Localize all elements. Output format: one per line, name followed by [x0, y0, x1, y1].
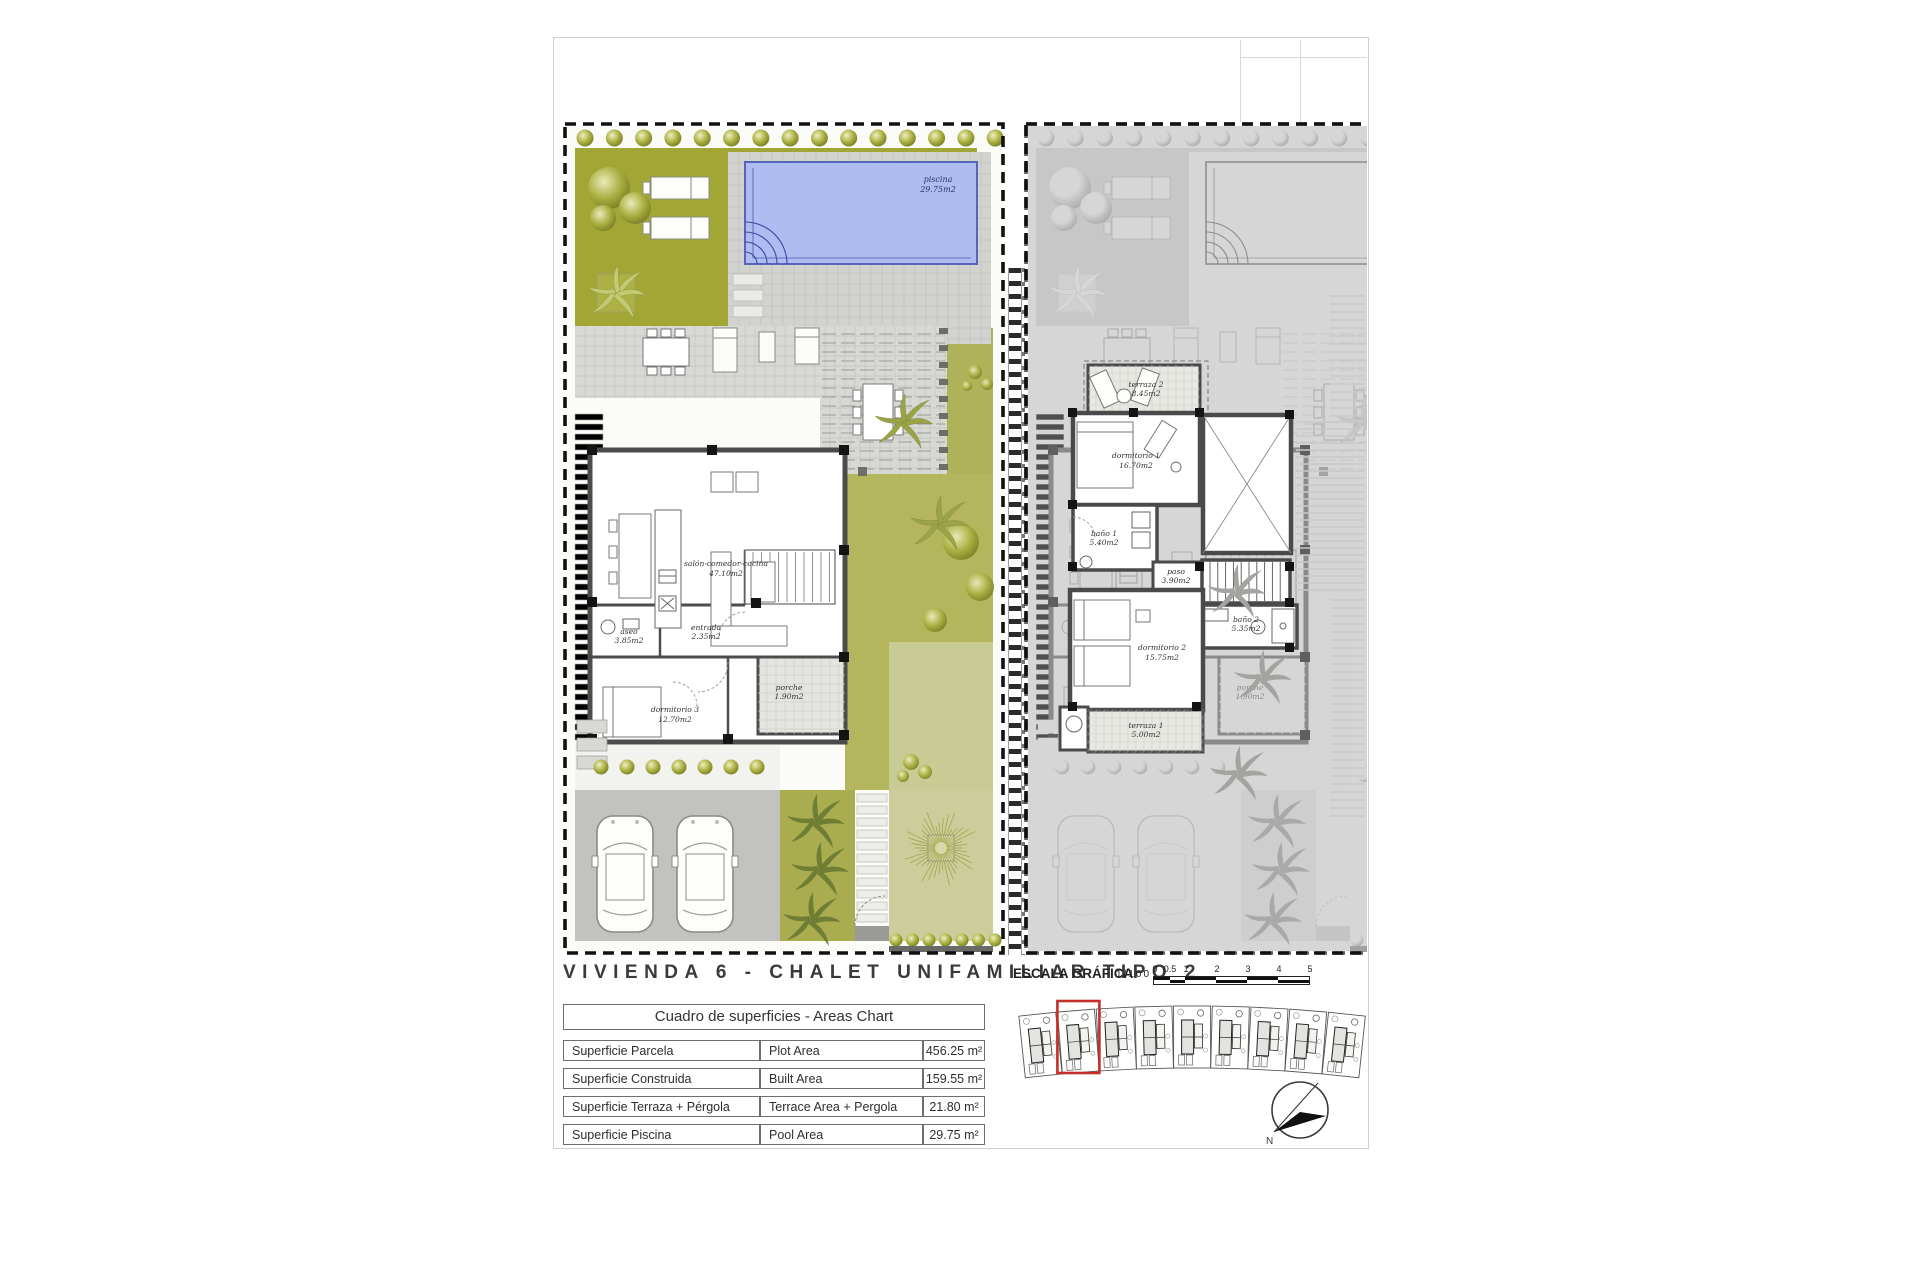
scale-tick: 0.5: [1164, 964, 1177, 974]
neighbour-line: [1240, 57, 1367, 58]
graphic-scale: ESCALA GRÁFICA 1/100 0 0.5 1 2 3 4 5: [1013, 964, 1363, 994]
room-area: 5.35m2: [1232, 624, 1261, 633]
room-area: 8.45m2: [1132, 389, 1161, 398]
room-area: 15.75m2: [1145, 653, 1179, 662]
ground-floor-plan: piscina 29.75m2: [563, 122, 1005, 955]
pool-area: 29.75m2: [919, 185, 956, 194]
scale-tick: 4: [1276, 964, 1281, 974]
room-label: baño 1: [1091, 529, 1117, 538]
car-icon: [592, 816, 658, 932]
palm-strip: [780, 790, 855, 946]
drawing-page: piscina 29.75m2: [0, 0, 1920, 1280]
scale-tick: 5: [1307, 964, 1312, 974]
table-row: Superficie Construida Built Area 159.55 …: [563, 1068, 985, 1089]
room-label: terraza 1: [1128, 721, 1163, 730]
room-label: baño 2: [1233, 615, 1259, 624]
driveway: [575, 720, 780, 941]
room-area: 5.00m2: [1132, 730, 1161, 739]
room-area: 16.70m2: [1119, 461, 1153, 470]
cell-en: Pool Area: [760, 1124, 923, 1145]
site-plan-strip: [1016, 996, 1368, 1082]
kitchen-island: [655, 510, 681, 628]
tree-row: [577, 130, 1004, 147]
site-unit: [1248, 1007, 1288, 1071]
cell-en: Terrace Area + Pergola: [760, 1096, 923, 1117]
scale-tick: 3: [1245, 964, 1250, 974]
section-ladder: [1008, 268, 1022, 955]
site-unit: [1322, 1012, 1365, 1078]
cell-value: 29.75 m²: [923, 1124, 985, 1145]
site-unit: [1135, 1006, 1174, 1069]
site-unit: [1058, 1009, 1100, 1074]
room-area: 3.90m2: [1162, 576, 1191, 585]
room-label: dormitorio 3: [651, 705, 699, 714]
cell-value: 456.25 m²: [923, 1040, 985, 1061]
plan-title: VIVIENDA 6 - CHALET UNIFAMILIAR TIPO 2: [563, 962, 1033, 988]
room-area: 47.10m2: [708, 569, 743, 578]
scale-tick: 2: [1214, 964, 1219, 974]
house: salón-comedor-cocina 47.10m2 entrada 2.3…: [587, 445, 849, 744]
scale-bar: 0 0.5 1 2 3 4 5: [1153, 964, 1313, 988]
car-icon: [672, 816, 738, 932]
walkway: [855, 790, 889, 941]
north-label: N: [1266, 1136, 1273, 1147]
table-row: Superficie Terraza + Pérgola Terrace Are…: [563, 1096, 985, 1117]
areas-table-header: Cuadro de superficies - Areas Chart: [563, 1004, 985, 1030]
site-unit: [1285, 1009, 1327, 1074]
scale-ratio: 1/100: [1116, 969, 1151, 980]
site-unit: [1211, 1006, 1250, 1069]
room-area: 1.90m2: [775, 692, 804, 701]
site-unit: [1174, 1006, 1211, 1068]
room-label: terraza 2: [1128, 380, 1163, 389]
pool-label: piscina: [924, 175, 953, 184]
site-unit: [1096, 1007, 1136, 1071]
cell-value: 159.55 m²: [923, 1068, 985, 1089]
ground-floor-content: piscina 29.75m2: [565, 124, 1004, 953]
cell-es: Superficie Parcela: [563, 1040, 760, 1061]
table-row: Superficie Parcela Plot Area 456.25 m²: [563, 1040, 985, 1061]
pool: piscina 29.75m2: [745, 162, 977, 264]
outdoor-dining-table: [643, 329, 689, 375]
scale-tick: 1: [1183, 964, 1188, 974]
cell-en: Built Area: [760, 1068, 923, 1089]
room-label: aseo: [620, 627, 638, 636]
cell-en: Plot Area: [760, 1040, 923, 1061]
room-area: 12.70m2: [658, 715, 692, 724]
room-label: paso: [1167, 567, 1185, 576]
cell-es: Superficie Construida: [563, 1068, 760, 1089]
stepping-stones: [733, 274, 763, 317]
room-area: 5.40m2: [1090, 538, 1119, 547]
room-area: 2.35m2: [691, 632, 721, 641]
cell-es: Superficie Piscina: [563, 1124, 760, 1145]
room-area: 3.85m2: [615, 636, 644, 645]
north-arrow: N: [1258, 1072, 1342, 1152]
site-unit: [1019, 1012, 1062, 1078]
neighbour-line: [1300, 40, 1301, 122]
table-row: Superficie Piscina Pool Area 29.75 m²: [563, 1124, 985, 1145]
room-label: porche: [776, 683, 803, 692]
upper-floor-plan: terraza 2 8.45m2 dormitorio 1 16.70m2 ba…: [1024, 122, 1367, 955]
neighbour-line: [1240, 40, 1241, 122]
room-label: dormitorio 2: [1138, 643, 1186, 652]
room-label: entrada: [691, 623, 721, 632]
cell-value: 21.80 m²: [923, 1096, 985, 1117]
room-label: dormitorio 1: [1112, 451, 1160, 460]
scale-tick: 0: [1152, 964, 1157, 974]
cell-es: Superficie Terraza + Pérgola: [563, 1096, 760, 1117]
room-label: salón-comedor-cocina: [684, 559, 768, 568]
